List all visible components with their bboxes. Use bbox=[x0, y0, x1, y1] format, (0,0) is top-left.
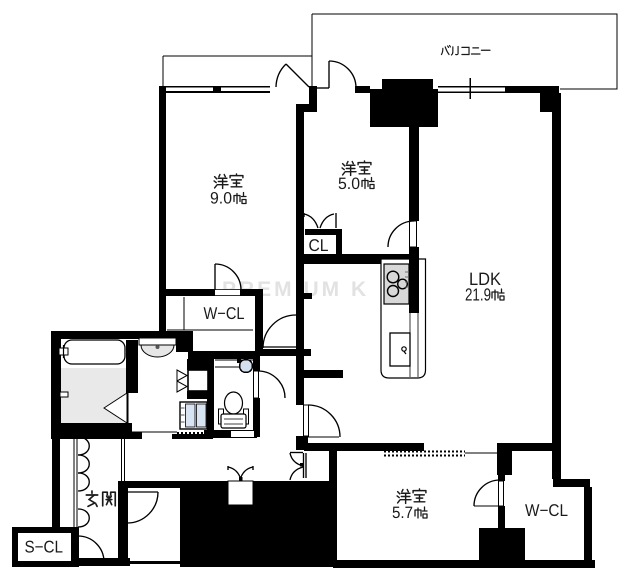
svg-text:21.9: 21.9 bbox=[465, 285, 491, 305]
svg-text:5.7: 5.7 bbox=[392, 504, 413, 522]
svg-text:S−CL: S−CL bbox=[25, 538, 64, 557]
svg-text:9.0: 9.0 bbox=[210, 190, 232, 208]
svg-text:CL: CL bbox=[309, 236, 329, 255]
svg-text:5.0: 5.0 bbox=[338, 175, 360, 193]
svg-text:W−CL: W−CL bbox=[204, 304, 245, 323]
svg-text:W−CL: W−CL bbox=[525, 501, 568, 520]
